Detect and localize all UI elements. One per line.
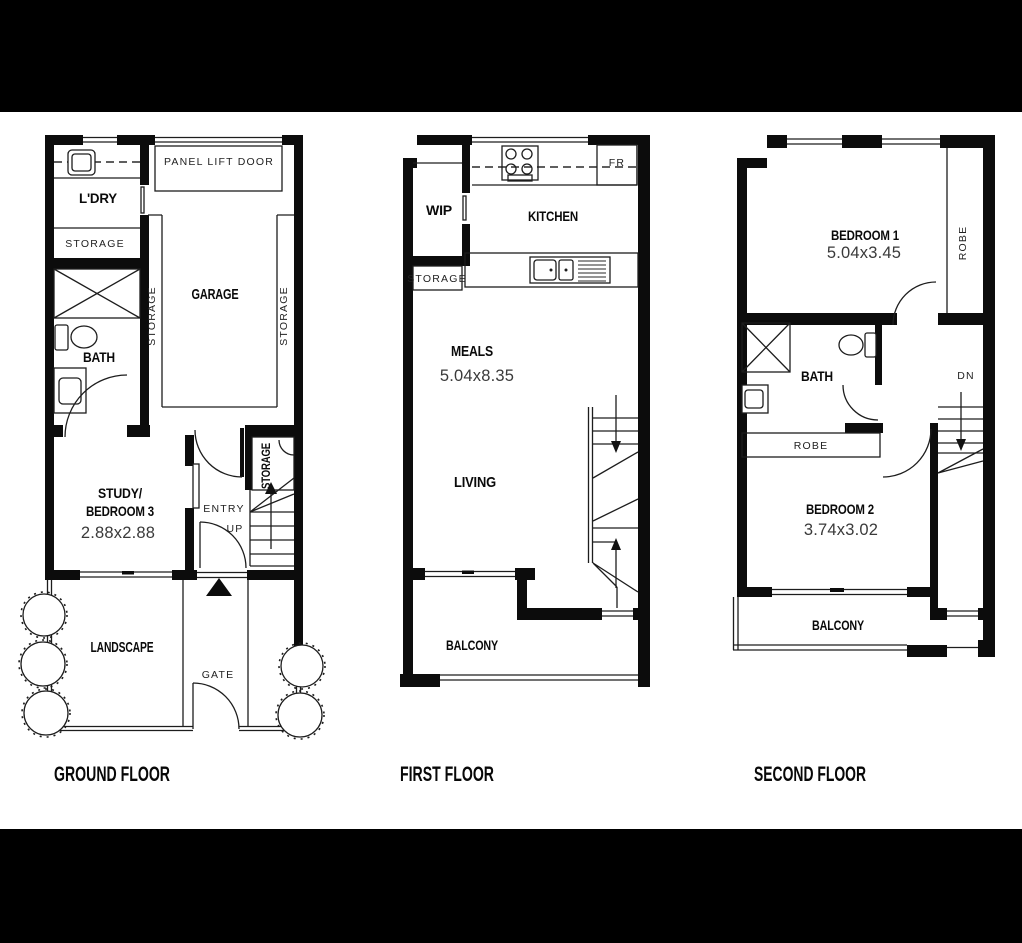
- sink-icon: [68, 150, 95, 175]
- ground-ldry-label: L'DRY: [79, 190, 118, 206]
- robe-hall-label: ROBE: [794, 440, 829, 452]
- second-floor-title: SECOND FLOOR: [754, 763, 866, 786]
- garage-storage-right-label: STORAGE: [278, 286, 290, 346]
- island-bench: [465, 253, 638, 287]
- fridge-label: FR: [609, 157, 625, 169]
- kitchen-label: KITCHEN: [528, 208, 578, 224]
- down-arrow-icon: [956, 439, 966, 451]
- bedroom1-door-arc: [893, 282, 936, 325]
- gate-label: GATE: [202, 669, 235, 681]
- entry-marker-icon: [206, 578, 232, 596]
- first-balcony-label: BALCONY: [446, 637, 499, 653]
- dn-label: DN: [957, 370, 975, 382]
- second-floor-plan: BEDROOM 1 5.04x3.45 ROBE BATH DN ROBE BE…: [733, 135, 995, 786]
- linen-cross-icon: [54, 269, 140, 318]
- cavity-slider-door: [193, 464, 199, 508]
- study-dimension: 2.88x2.88: [81, 524, 155, 542]
- tree-icon: [19, 592, 325, 739]
- up-arrow-icon: [611, 538, 621, 550]
- panel-lift-door-box: [155, 146, 282, 191]
- up-label: UP: [227, 523, 244, 535]
- living-label: LIVING: [454, 474, 496, 491]
- gate-door: [193, 683, 239, 729]
- panel-lift-door-label: PANEL LIFT DOOR: [164, 156, 274, 168]
- bedroom2-dimension: 3.74x3.02: [804, 521, 878, 539]
- first-storage-label: STORAGE: [407, 273, 467, 285]
- ground-garage-label: GARAGE: [192, 286, 239, 303]
- ground-floor-plan: L'DRY STORAGE BATH GARAGE PANEL LIFT DOO…: [19, 135, 325, 786]
- door-jamb: [141, 187, 144, 213]
- bedroom1-dimension: 5.04x3.45: [827, 244, 901, 262]
- meals-dimension: 5.04x8.35: [440, 367, 514, 385]
- courtyard: [19, 580, 325, 739]
- ground-storage-room-label: STORAGE: [65, 238, 125, 250]
- meals-label: MEALS: [451, 343, 493, 360]
- garage-outline: [148, 215, 294, 407]
- bedroom1-label: BEDROOM 1: [831, 227, 899, 243]
- garage-entry-door: [195, 428, 244, 477]
- first-floor-title: FIRST FLOOR: [400, 763, 494, 786]
- study-label-1: STUDY/: [98, 485, 142, 501]
- stairs: [250, 478, 294, 566]
- ground-floor-title: GROUND FLOOR: [54, 763, 170, 786]
- sink-double-icon: [530, 257, 610, 283]
- floor-plan-drawing: L'DRY STORAGE BATH GARAGE PANEL LIFT DOO…: [0, 0, 1022, 943]
- understair-storage-label: STORAGE: [259, 443, 273, 489]
- toilet-icon: [55, 325, 97, 350]
- cooktop-icon: [502, 146, 538, 181]
- study-label-2: BEDROOM 3: [86, 503, 154, 519]
- stairs: [938, 392, 983, 473]
- landscape-label: LANDSCAPE: [91, 639, 154, 656]
- entry-label: ENTRY: [203, 503, 244, 515]
- first-floor-plan: WIP KITCHEN FR STORAGE MEALS 5.04x8.35 L…: [400, 135, 650, 786]
- down-arrow-icon: [611, 441, 621, 453]
- bedroom2-door-arc: [883, 429, 931, 477]
- ground-bath-label: BATH: [83, 349, 115, 365]
- stairs: [589, 395, 639, 608]
- second-bath-label: BATH: [801, 368, 833, 384]
- wip-label: WIP: [426, 202, 452, 218]
- walls: [737, 135, 995, 657]
- toilet-icon: [839, 333, 876, 357]
- second-balcony-label: BALCONY: [812, 617, 865, 633]
- vanity-icon: [54, 368, 86, 413]
- shower-icon: [742, 323, 790, 372]
- bedroom2-label: BEDROOM 2: [806, 501, 874, 517]
- garage-storage-left-label: STORAGE: [146, 286, 158, 346]
- floor-plan-sheet: L'DRY STORAGE BATH GARAGE PANEL LIFT DOO…: [0, 0, 1022, 943]
- robe-bedroom1-label: ROBE: [957, 226, 969, 261]
- bath-door-arc: [843, 385, 878, 420]
- vanity-icon: [742, 385, 768, 413]
